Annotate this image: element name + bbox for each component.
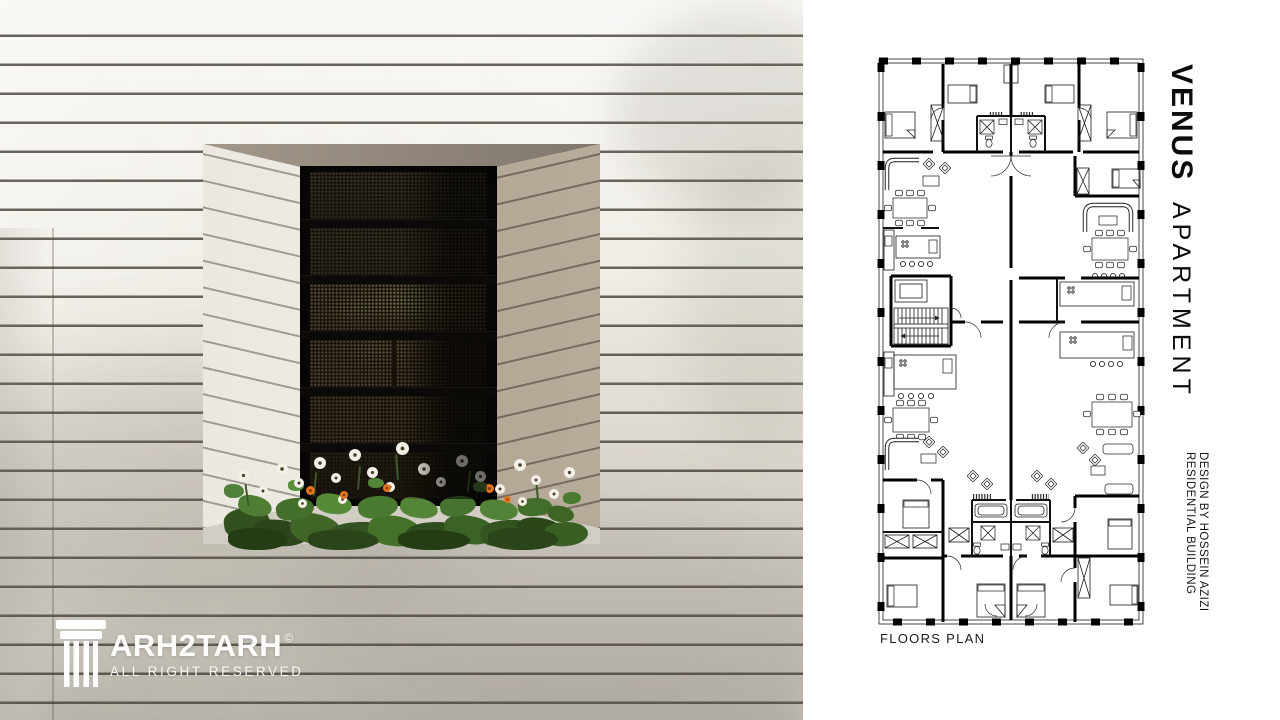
white-pansy-flower	[298, 499, 307, 508]
rights-text: ALL RIGHT RESERVED	[110, 664, 304, 679]
window-frame	[300, 166, 497, 506]
white-pansy-flower	[276, 463, 288, 475]
foliage-leaf	[228, 528, 288, 550]
frame-bar	[300, 387, 497, 396]
copyright-mark: ©	[284, 631, 293, 645]
frame-bar	[300, 331, 497, 340]
project-title: VENUS APARTMENT	[1164, 64, 1198, 399]
watermark-logo: ARH2TARH© ALL RIGHT RESERVED	[56, 616, 304, 687]
subtitle-designer: DESIGN BY HOSSEIN AZIZI	[1197, 452, 1209, 612]
foliage-leaf	[562, 491, 581, 505]
facade-corner-shade	[0, 228, 52, 720]
subtitle-residential: RESIDENTIAL BUILDING	[1184, 452, 1196, 595]
title-apartment: APARTMENT	[1167, 202, 1195, 399]
white-pansy-flower	[514, 459, 526, 471]
foliage-leaf	[479, 498, 519, 522]
white-pansy-flower	[549, 489, 559, 499]
foliage-leaf	[308, 530, 378, 550]
white-pansy-flower	[238, 470, 249, 481]
floor-plan-drawing	[876, 56, 1146, 628]
white-pansy-flower	[258, 486, 268, 496]
caption-floors-plan: FLOORS PLAN	[880, 631, 985, 646]
mesh-panel	[310, 228, 487, 275]
presentation-board: ARH2TARH© ALL RIGHT RESERVED	[0, 0, 1280, 720]
frame-bar	[300, 275, 497, 284]
facade-photo: ARH2TARH© ALL RIGHT RESERVED	[0, 0, 803, 720]
title-venus: VENUS	[1165, 64, 1198, 182]
white-pansy-flower	[294, 478, 304, 488]
foliage-leaf	[398, 530, 470, 550]
project-subtitle: RESIDENTIAL BUILDING DESIGN BY HOSSEIN A…	[1184, 452, 1209, 612]
mesh-panel-tree-reflection	[310, 340, 487, 387]
brand-text: ARH2TARH©	[110, 630, 304, 661]
watermark-text: ARH2TARH© ALL RIGHT RESERVED	[110, 630, 304, 679]
mesh-panel	[310, 396, 487, 443]
greek-column-icon	[56, 620, 106, 687]
foliage-leaf	[224, 484, 244, 498]
white-pansy-flower	[531, 475, 541, 485]
foliage-leaf	[488, 528, 558, 550]
white-pansy-flower	[564, 467, 575, 478]
mesh-panel-tree-reflection	[310, 284, 487, 331]
frame-bar	[300, 219, 497, 228]
facade-corner-edge	[52, 228, 54, 720]
floor-plan	[876, 56, 1146, 628]
white-pansy-flower	[518, 497, 527, 506]
mesh-panel	[310, 452, 487, 499]
mesh-panel	[310, 172, 487, 219]
orange-flower	[504, 496, 511, 503]
white-pansy-flower	[495, 484, 505, 494]
